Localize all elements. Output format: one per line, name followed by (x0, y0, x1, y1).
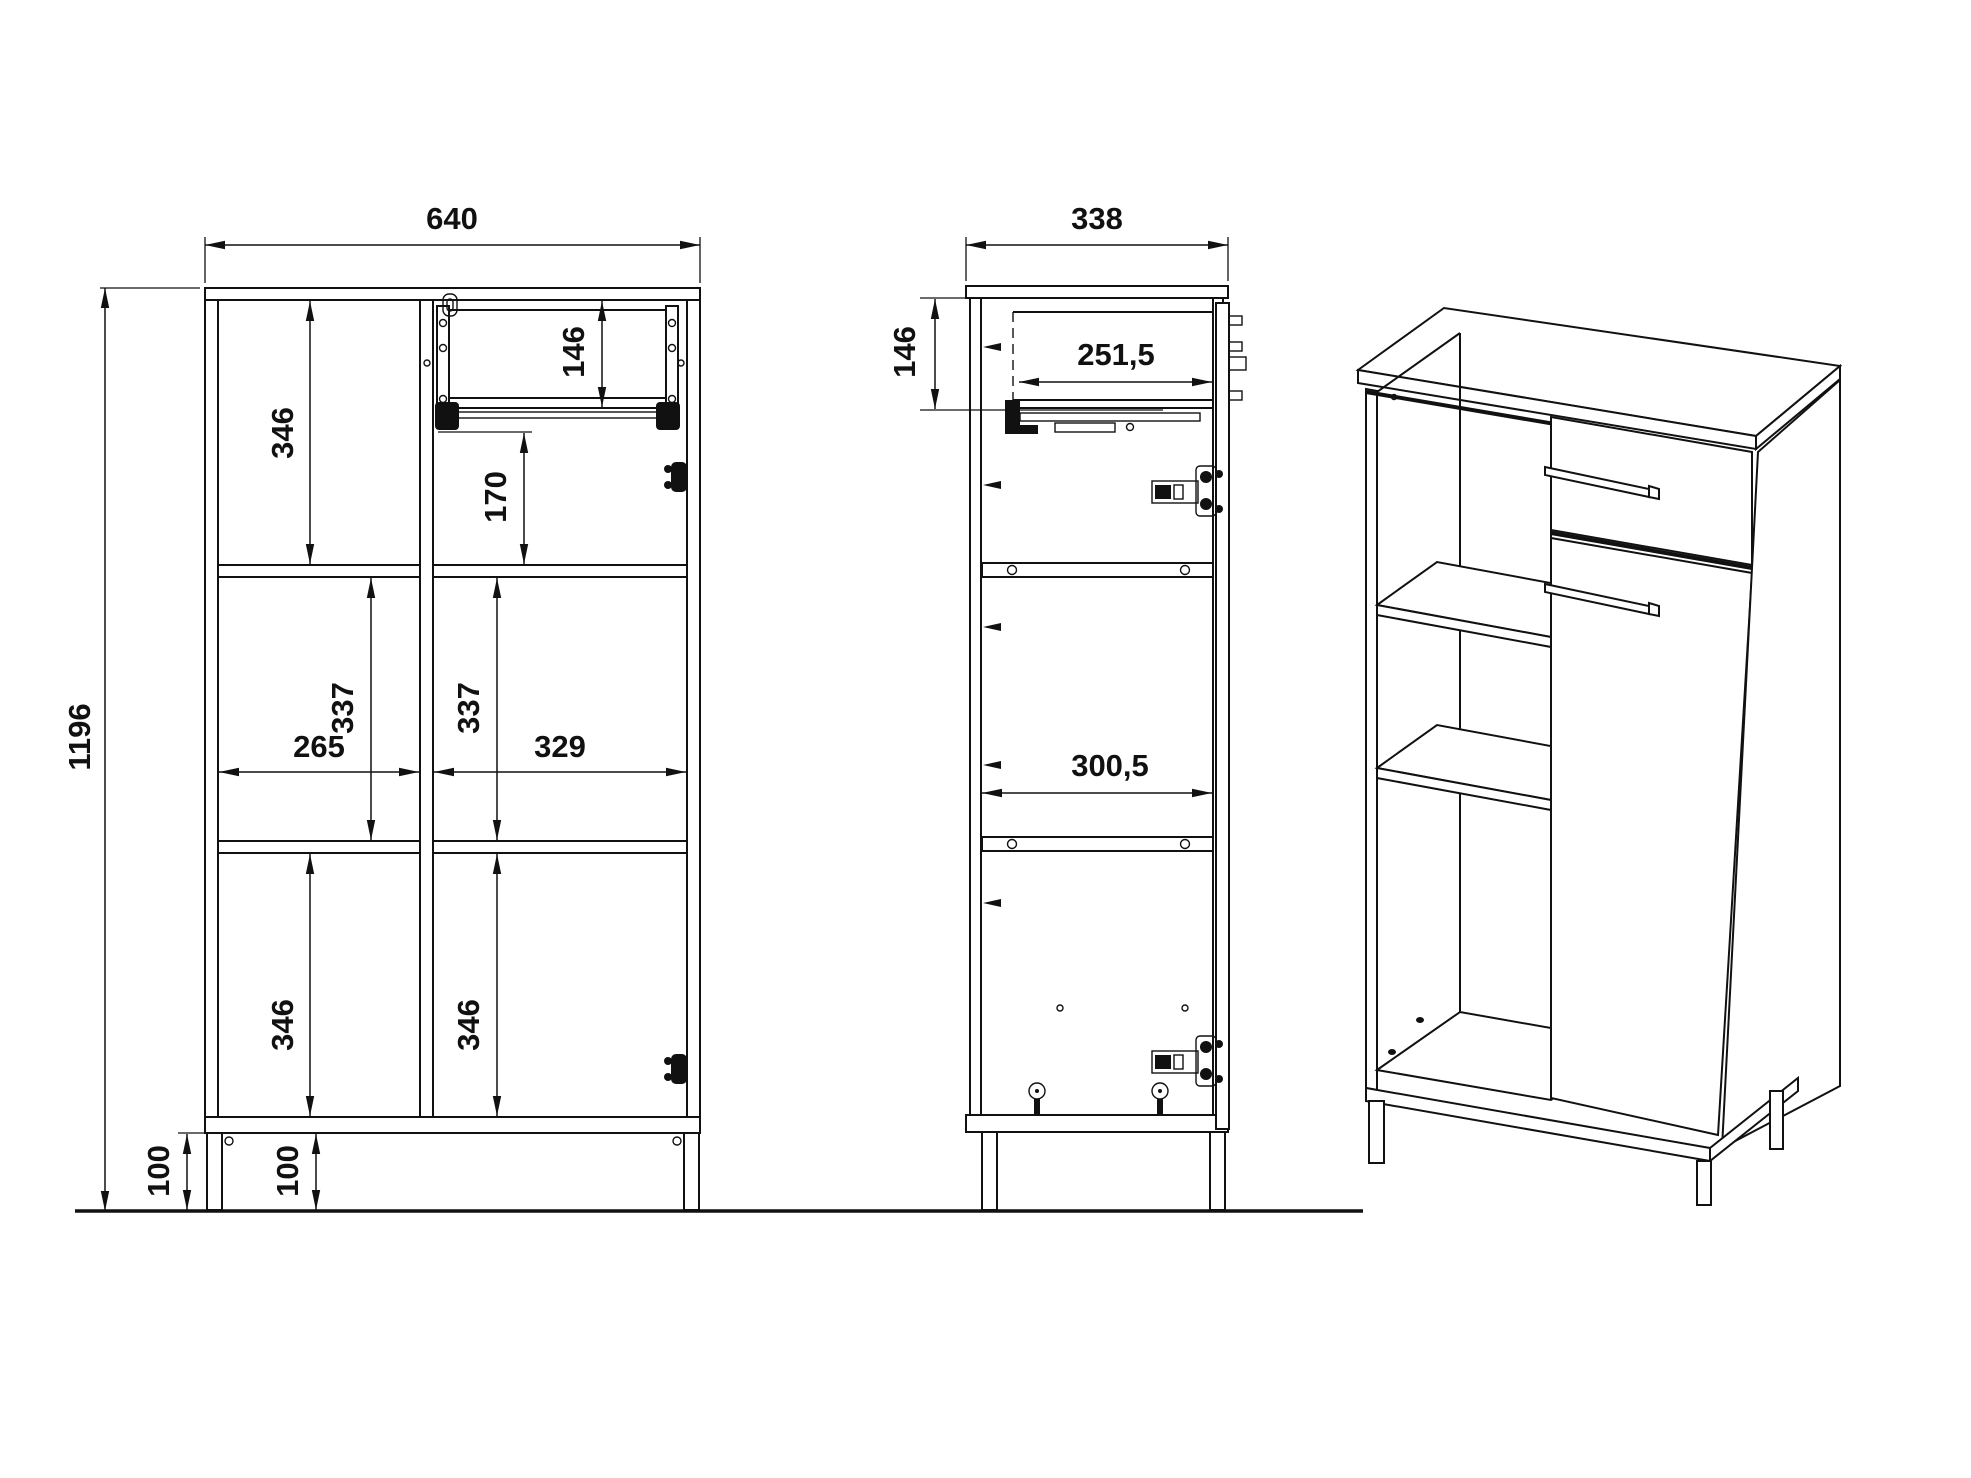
drawer-slide-hw-left (435, 402, 459, 430)
dim-label-drawer-height: 146 (556, 326, 591, 378)
side-shelf-1 (982, 563, 1213, 577)
dim-label-leg-inner: 100 (270, 1145, 305, 1197)
side-front-peg-1 (1229, 316, 1242, 325)
side-drawer-handle-profile (1229, 357, 1246, 370)
dim-cell-left-width: 265 (219, 729, 419, 772)
dim-label-cell-right-width: 329 (534, 729, 586, 764)
dim-label-side-depth: 338 (1071, 201, 1123, 236)
persp-leg-back-right (1770, 1091, 1783, 1149)
dim-label-bottom-right: 346 (451, 999, 486, 1051)
persp-left-panel (1366, 389, 1377, 1090)
side-leg-front (1210, 1132, 1225, 1210)
front-leveler-left (225, 1137, 233, 1145)
front-shelf-right-1 (433, 565, 687, 577)
technical-drawing-page: 640 1196 346 146 170 337 337 (0, 0, 1971, 1478)
persp-leg-front-left (1369, 1101, 1384, 1163)
dim-mid-right: 337 (451, 578, 497, 840)
persp-bottom-hole-1 (1416, 1017, 1424, 1023)
dim-cell-right-width: 329 (434, 729, 686, 772)
persp-bottom-hole-2 (1388, 1049, 1396, 1055)
side-front-peg-2 (1229, 342, 1242, 351)
dim-front-width: 640 (205, 201, 700, 283)
persp-door (1551, 538, 1752, 1135)
dim-side-depth: 338 (966, 201, 1228, 281)
dim-label-front-height: 1196 (62, 703, 97, 770)
dim-front-height: 1196 (62, 288, 200, 1211)
side-view: 338 146 251,5 300,5 (887, 201, 1246, 1210)
drawer-box-bottom (449, 398, 666, 408)
front-drawer-unit (424, 294, 684, 430)
dim-leg-outer: 100 (141, 1133, 205, 1210)
dim-leg-inner: 100 (270, 1134, 316, 1210)
persp-leg-front-right (1697, 1161, 1711, 1205)
front-leveler-right (673, 1137, 681, 1145)
drawer-rail-right (666, 306, 678, 418)
side-bottom-plate (966, 1115, 1228, 1132)
front-left-wall (205, 300, 218, 1117)
dim-bottom-right: 346 (451, 854, 497, 1116)
dim-bottom-left: 346 (265, 854, 310, 1116)
front-hinge-top (664, 462, 687, 492)
front-shelf-left-2 (218, 841, 420, 853)
dim-label-mid-left: 337 (325, 682, 360, 734)
side-shelf-2 (982, 837, 1213, 851)
technical-drawing: 640 1196 346 146 170 337 337 (0, 0, 1971, 1478)
dim-label-leg-outer: 100 (141, 1145, 176, 1197)
front-shelf-right-2 (433, 841, 687, 853)
front-leg-left (207, 1133, 222, 1210)
dim-label-bottom-left: 346 (265, 999, 300, 1051)
front-bottom-plate (205, 1117, 700, 1133)
dim-label-mid-right: 337 (451, 682, 486, 734)
dim-label-side-interior-depth: 300,5 (1071, 748, 1149, 783)
front-shelf-left-1 (218, 565, 420, 577)
dim-label-drawer-to-shelf: 170 (478, 471, 513, 523)
dim-drawer-to-shelf: 170 (438, 432, 532, 564)
side-door-panel (1216, 303, 1229, 1129)
front-center-partition (420, 300, 433, 1117)
front-hinge-bottom (664, 1054, 687, 1084)
drawer-slide-hw-right (656, 402, 680, 430)
dim-label-cell-left-width: 265 (293, 729, 345, 764)
drawer-rail-left (437, 306, 449, 418)
side-top-board (966, 286, 1228, 298)
side-front-peg-3 (1229, 391, 1242, 400)
side-leg-back (982, 1132, 997, 1210)
dim-mid-left: 337 (325, 578, 371, 840)
front-right-wall (687, 300, 700, 1117)
perspective-view (1358, 308, 1840, 1205)
front-view: 640 1196 346 146 170 337 337 (62, 201, 700, 1211)
dim-label-side-drawer-height: 146 (887, 326, 922, 378)
dim-label-front-width: 640 (426, 201, 478, 236)
dim-label-side-drawer-depth: 251,5 (1077, 337, 1155, 372)
dim-label-cell-top-left: 346 (265, 407, 300, 459)
dim-cell-top-left: 346 (265, 301, 310, 564)
drawer-slide-bar (449, 412, 666, 418)
front-leg-right (684, 1133, 699, 1210)
